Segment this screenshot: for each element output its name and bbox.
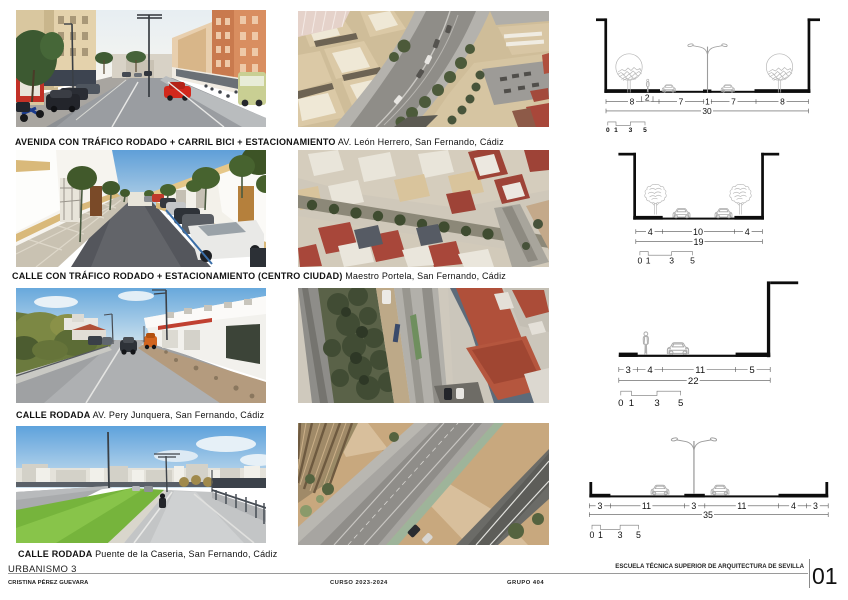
svg-text:0: 0 [618, 398, 623, 408]
svg-text:1: 1 [598, 530, 603, 540]
svg-text:5: 5 [636, 530, 641, 540]
svg-text:5: 5 [643, 127, 647, 134]
svg-text:3: 3 [618, 530, 623, 540]
svg-text:5: 5 [678, 398, 683, 408]
svg-text:3: 3 [813, 501, 818, 511]
svg-text:1: 1 [646, 255, 651, 265]
svg-text:3: 3 [629, 127, 633, 134]
svg-text:4: 4 [791, 501, 796, 511]
svg-text:1: 1 [629, 398, 634, 408]
svg-text:4: 4 [648, 227, 653, 237]
svg-text:35: 35 [703, 510, 713, 520]
svg-text:0: 0 [638, 255, 643, 265]
svg-text:3: 3 [654, 398, 659, 408]
svg-text:22: 22 [688, 376, 699, 387]
svg-text:30: 30 [702, 106, 712, 116]
svg-text:3: 3 [597, 501, 602, 511]
svg-text:4: 4 [647, 365, 653, 376]
svg-text:11: 11 [695, 365, 705, 376]
svg-text:0: 0 [606, 127, 610, 134]
svg-text:1: 1 [614, 127, 618, 134]
svg-text:3: 3 [669, 255, 674, 265]
svg-text:8: 8 [630, 97, 635, 107]
svg-text:5: 5 [749, 365, 754, 376]
svg-text:7: 7 [731, 97, 736, 107]
svg-text:11: 11 [737, 501, 746, 511]
svg-text:5: 5 [690, 255, 695, 265]
svg-text:8: 8 [780, 97, 785, 107]
svg-text:19: 19 [693, 237, 703, 247]
svg-text:0: 0 [590, 530, 595, 540]
svg-text:2: 2 [645, 92, 650, 102]
svg-text:7: 7 [679, 97, 684, 107]
svg-text:3: 3 [626, 365, 631, 376]
svg-text:3: 3 [691, 501, 696, 511]
svg-text:11: 11 [642, 501, 651, 511]
svg-text:4: 4 [745, 227, 750, 237]
svg-text:10: 10 [693, 227, 703, 237]
